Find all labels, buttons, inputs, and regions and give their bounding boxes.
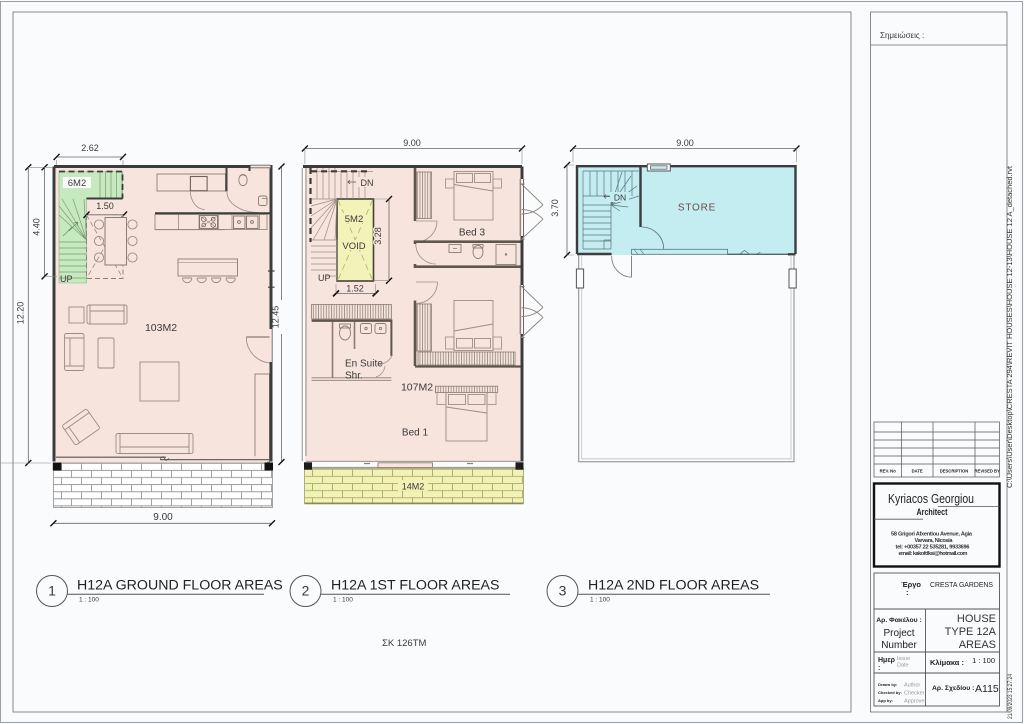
svg-text:5M2: 5M2 [345, 214, 363, 225]
svg-text:UP: UP [318, 273, 331, 283]
svg-text:DATE: DATE [912, 469, 923, 474]
svg-text:H12A 2ND FLOOR AREAS: H12A 2ND FLOOR AREAS [588, 578, 759, 594]
svg-text:107M2: 107M2 [401, 382, 433, 394]
svg-text:2.62: 2.62 [81, 143, 99, 153]
svg-text:CRESTA GARDENS: CRESTA GARDENS [930, 580, 993, 589]
svg-text:DN: DN [361, 178, 374, 188]
svg-text:Project: Project [883, 628, 914, 639]
svg-text:App by:: App by: [878, 698, 893, 703]
svg-text:Αρ. Φακέλου :: Αρ. Φακέλου : [876, 616, 921, 624]
svg-text:1 : 100: 1 : 100 [333, 597, 353, 604]
svg-text:12.20: 12.20 [16, 302, 26, 325]
svg-text:Author: Author [904, 683, 920, 689]
svg-text:Αρ. Σχεδίου :: Αρ. Σχεδίου : [932, 685, 974, 692]
svg-text:TYPE 12A: TYPE 12A [945, 626, 997, 638]
svg-text:Checked by:: Checked by: [878, 690, 902, 695]
svg-text:email: kakofdksi@hotmail.com: email: kakofdksi@hotmail.com [899, 551, 968, 557]
svg-text:DN: DN [614, 193, 626, 203]
svg-text:H12A 1ST FLOOR AREAS: H12A 1ST FLOOR AREAS [331, 578, 499, 594]
svg-text:H12A GROUND FLOOR AREAS: H12A GROUND FLOOR AREAS [77, 578, 283, 594]
svg-text:A115: A115 [975, 683, 999, 695]
svg-text:VOID: VOID [342, 241, 365, 252]
svg-text:Approver: Approver [904, 699, 926, 705]
svg-text:UP: UP [60, 274, 73, 284]
svg-text::: : [906, 588, 909, 597]
svg-text:21/09/2023 15:27:24: 21/09/2023 15:27:24 [1008, 673, 1014, 719]
svg-text:Bed 1: Bed 1 [402, 428, 429, 439]
svg-text:HOUSE: HOUSE [957, 613, 996, 625]
svg-text:Shr.: Shr. [345, 371, 363, 382]
svg-text:Architect: Architect [917, 507, 948, 517]
svg-text:Issue: Issue [897, 656, 910, 662]
svg-text:Number: Number [881, 640, 917, 651]
svg-text:103M2: 103M2 [145, 322, 177, 334]
svg-text:9.00: 9.00 [676, 138, 694, 148]
svg-text:Date: Date [897, 663, 909, 669]
svg-text:Έργο: Έργο [901, 580, 921, 589]
svg-text:C:\Users\User\Desktop\CRESTA 2: C:\Users\User\Desktop\CRESTA 294\REVIT H… [1005, 166, 1014, 488]
svg-text:REVISED BY: REVISED BY [975, 469, 1001, 474]
svg-text:58 Grigori Afxentiou Avenue, A: 58 Grigori Afxentiou Avenue, Agia [891, 532, 973, 538]
svg-text:3: 3 [559, 583, 567, 599]
svg-text:Kyriacos Georgiou: Kyriacos Georgiou [888, 492, 974, 506]
svg-text::: : [878, 665, 880, 672]
svg-text:REV. No: REV. No [880, 469, 897, 474]
svg-text:Varvara, Nicosia: Varvara, Nicosia [915, 538, 954, 544]
svg-text:1 : 100: 1 : 100 [972, 656, 995, 665]
svg-text:1.50: 1.50 [96, 201, 114, 211]
svg-text:1: 1 [48, 583, 56, 599]
svg-text:DESCRIPTION: DESCRIPTION [940, 469, 969, 474]
svg-text:9.00: 9.00 [153, 512, 173, 523]
svg-text:Σημειώσεις :: Σημειώσεις : [880, 31, 924, 40]
svg-text:9.00: 9.00 [403, 138, 421, 148]
svg-text:4.40: 4.40 [32, 218, 42, 236]
svg-text:3.28: 3.28 [373, 227, 383, 245]
svg-text:6M2: 6M2 [68, 178, 86, 189]
svg-text:Κλίμακα :: Κλίμακα : [930, 658, 964, 667]
svg-text:1 : 100: 1 : 100 [590, 597, 610, 604]
svg-text:Drawn by:: Drawn by: [878, 682, 897, 687]
svg-text:STORE: STORE [678, 203, 716, 214]
svg-text:En Suite: En Suite [345, 359, 383, 370]
svg-text:1.52: 1.52 [346, 284, 364, 294]
svg-text:12.45: 12.45 [271, 306, 281, 329]
svg-text:2: 2 [302, 583, 310, 599]
svg-text:ΣΚ 126TM: ΣΚ 126TM [382, 638, 427, 649]
svg-text:AREAS: AREAS [959, 639, 996, 651]
svg-text:Ημερ: Ημερ [878, 657, 896, 664]
svg-text:3.70: 3.70 [550, 199, 560, 217]
svg-text:1 : 100: 1 : 100 [79, 597, 99, 604]
svg-text:tel: +00357 22 535281, 9933696: tel: +00357 22 535281, 9933696 [896, 545, 970, 551]
svg-text:14M2: 14M2 [402, 482, 425, 492]
svg-text:Bed 3: Bed 3 [459, 228, 486, 239]
svg-text:Checker: Checker [904, 691, 925, 697]
